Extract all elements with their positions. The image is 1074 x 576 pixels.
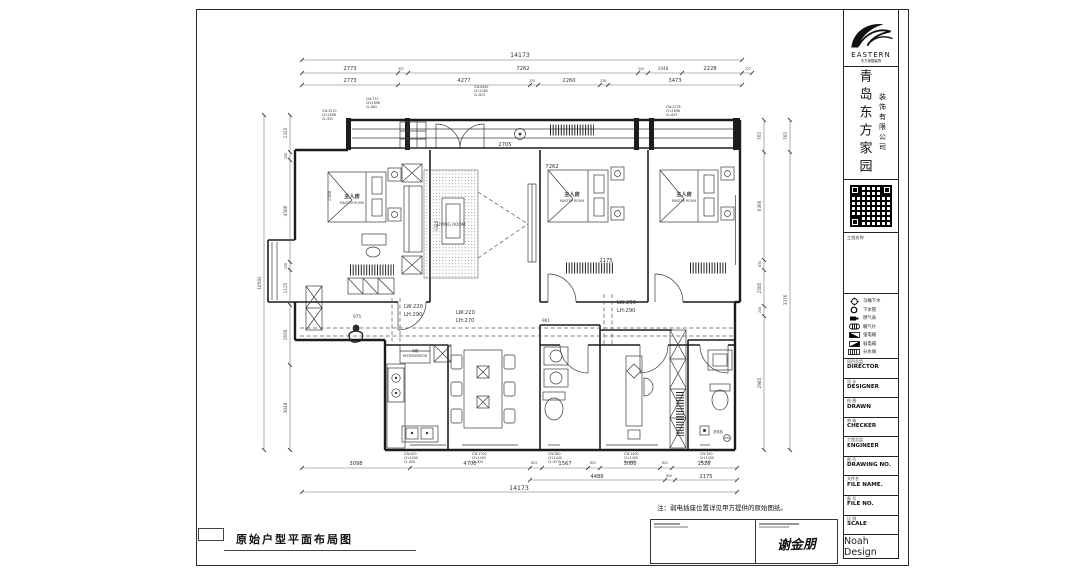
svg-text:1500: 1500 (327, 190, 332, 201)
field-file-name: 文件名 FILE NAME. (843, 475, 899, 496)
company-box: 青岛东方家园 装饰有限公司 (843, 66, 899, 180)
svg-text:225: 225 (529, 79, 535, 83)
svg-text:3048: 3048 (283, 402, 288, 413)
svg-text:2773: 2773 (343, 78, 356, 84)
study (626, 356, 653, 439)
field-engineer: 工程总监 ENGINEER (843, 436, 899, 457)
eastern-logo-icon (846, 18, 896, 52)
svg-text:CL-922: CL-922 (700, 460, 711, 464)
svg-text:327: 327 (398, 67, 404, 71)
svg-text:LH:290: LH:290 (404, 312, 422, 318)
drain-pipe-icon (848, 306, 860, 314)
logo-box: EASTERN 东方家园装饰 (843, 9, 899, 67)
svg-text:3098: 3098 (349, 461, 362, 467)
field-scale: 比 例 SCALE (843, 515, 899, 536)
power-box-icon (848, 332, 860, 338)
signature-text: 谢金朋 (756, 533, 838, 555)
hall-closet (306, 286, 322, 330)
svg-text:225: 225 (638, 67, 644, 71)
svg-text:CL-927: CL-927 (548, 460, 559, 464)
svg-text:10592: 10592 (257, 276, 262, 290)
svg-text:4488: 4488 (590, 474, 603, 480)
svg-text:2175: 2175 (599, 258, 612, 264)
svg-text:230: 230 (758, 307, 762, 313)
svg-text:6366: 6366 (757, 200, 762, 211)
title-block: EASTERN 东方家园装饰 青岛东方家园 装饰有限公司 工程名称 马桶下水 下 (843, 10, 899, 565)
logo-subtext: 东方家园装饰 (861, 59, 881, 64)
svg-text:CL-915: CL-915 (624, 460, 635, 464)
svg-text:2505: 2505 (757, 282, 762, 293)
svg-text:765: 765 (783, 132, 788, 140)
legend-box: 马桶下水 下水管 燃气表 暖气片 强电箱 弱电箱 (843, 293, 899, 359)
svg-text:7262: 7262 (545, 164, 558, 170)
walls (268, 118, 740, 450)
svg-text:LH:290: LH:290 (617, 308, 635, 314)
signature-cell-left (650, 519, 756, 564)
svg-text:2175: 2175 (699, 474, 712, 480)
svg-text:LW:220: LW:220 (456, 310, 475, 316)
bedroom3-label: 主人房 (676, 190, 692, 198)
bed-3 (660, 167, 734, 222)
svg-text:MASTER ROOM: MASTER ROOM (560, 199, 584, 203)
field-file-no: 备 号 FILE NO. (843, 495, 899, 516)
svg-text:LW:200: LW:200 (617, 300, 636, 306)
field-drawing-no: 图 号 DRAWING NO. (843, 456, 899, 477)
svg-text:MASTER ROOM: MASTER ROOM (672, 199, 696, 203)
living-room-label: LIVING ROOM (437, 222, 466, 227)
toilet-drain-icon (848, 297, 860, 306)
field-designer: 设 计 DESIGNER (843, 378, 899, 399)
svg-text:961: 961 (542, 318, 550, 323)
fridge-label: 冰箱 (412, 348, 419, 353)
bed-2 (548, 167, 624, 222)
svg-text:1325: 1325 (283, 127, 288, 138)
qr-code (850, 185, 892, 227)
dim-label: 14173 (510, 52, 530, 59)
svg-text:228: 228 (600, 79, 606, 83)
kitchen (387, 345, 451, 448)
wardrobe (348, 278, 394, 294)
floor-plan-drawing: 14173 2773 327 7262 225 1048 2228 227 27… (0, 0, 1074, 576)
furniture (328, 122, 734, 448)
living-room (402, 164, 536, 278)
svg-text:1567: 1567 (558, 461, 571, 467)
legend-item: 马桶下水 (848, 297, 896, 305)
gas-meter-icon (848, 315, 860, 322)
legend-item: 暖气片 (848, 323, 896, 331)
svg-text:LW:220: LW:220 (404, 304, 423, 310)
radiators (306, 130, 726, 448)
company-name-sub: 装饰有限公司 (878, 93, 888, 153)
plan-note: 注：弱电插座位置详见甲方提供的原始图纸。 (657, 502, 787, 512)
svg-text:1125: 1125 (283, 282, 288, 293)
svg-text:CL-623: CL-623 (666, 113, 677, 117)
manifold-icon (848, 349, 860, 355)
bed-1 (328, 168, 401, 257)
bathroom-2 (700, 350, 732, 441)
brand-text: Noah Design (844, 536, 898, 558)
title-block-fields: 项目总监 DIRECTOR 设 计 DESIGNER 绘 图 DRAWN 审 核… (843, 359, 899, 535)
plan-title-tab (198, 528, 224, 541)
legend-item: 弱电箱 (848, 340, 896, 348)
svg-text:CL-623: CL-623 (474, 93, 485, 97)
svg-text:2260: 2260 (562, 78, 575, 84)
svg-text:227: 227 (745, 67, 751, 71)
legend-item: 分水阀 (848, 348, 896, 356)
field-director: 项目总监 DIRECTOR (843, 358, 899, 379)
lowvolt-box-icon (848, 341, 860, 347)
bathroom-1 (543, 347, 568, 420)
svg-text:4506: 4506 (283, 205, 288, 216)
washer-label: 洗衣机 (713, 429, 723, 434)
svg-text:630: 630 (758, 261, 762, 267)
signature-cell-right: 谢金朋 (755, 519, 838, 564)
svg-text:230: 230 (284, 153, 288, 159)
svg-text:622: 622 (662, 461, 668, 465)
brand-box: Noah Design (843, 534, 899, 559)
svg-text:4277: 4277 (457, 78, 470, 84)
company-name: 青岛东方家园 (855, 69, 874, 177)
plan-title: 原始户型平面布局图 (236, 531, 353, 547)
svg-text:1650: 1650 (283, 329, 288, 340)
project-name-box: 工程名称 (843, 232, 899, 294)
svg-text:3376: 3376 (783, 294, 788, 305)
svg-text:CL-925: CL-925 (322, 117, 333, 121)
plan-title-underline (224, 550, 416, 551)
svg-text:14173: 14173 (509, 485, 529, 492)
legend-item: 下水管 (848, 306, 896, 314)
svg-text:CL-682: CL-682 (366, 105, 377, 109)
svg-text:2985: 2985 (757, 377, 762, 388)
svg-text:REFRIGERATOR: REFRIGERATOR (403, 354, 428, 358)
floor-plan-sheet: 14173 2773 327 7262 225 1048 2228 227 27… (0, 0, 1074, 576)
svg-text:3473: 3473 (668, 78, 681, 84)
beam-dashes (300, 192, 734, 346)
field-checker: 审 核 CHECKER (843, 417, 899, 438)
svg-text:600: 600 (666, 474, 672, 478)
svg-text:975: 975 (353, 314, 361, 319)
radiator-icon (848, 323, 860, 330)
svg-text:1048: 1048 (658, 66, 669, 71)
svg-text:765: 765 (757, 132, 762, 140)
legend-item: 燃气表 (848, 314, 896, 322)
legend-item: 强电箱 (848, 331, 896, 339)
qr-box (843, 179, 899, 233)
field-drawn: 绘 图 DRAWN (843, 397, 899, 418)
svg-text:CL-920: CL-920 (472, 460, 483, 464)
beam-labels: LW:220 LH:290 LW:220 LH:270 LW:200 LH:29… (404, 300, 636, 324)
svg-text:230: 230 (284, 263, 288, 269)
project-name-label: 工程名称 (847, 235, 895, 241)
svg-text:LH:270: LH:270 (456, 318, 474, 324)
svg-text:625: 625 (590, 461, 596, 465)
svg-text:7262: 7262 (516, 66, 529, 72)
svg-text:2228: 2228 (703, 66, 716, 72)
bedroom2-label: 主人房 (564, 190, 580, 198)
svg-text:623: 623 (531, 461, 537, 465)
svg-text:CL-900: CL-900 (404, 460, 415, 464)
svg-text:2773: 2773 (343, 66, 356, 72)
svg-text:MASTER ROOM: MASTER ROOM (340, 201, 364, 205)
dining (451, 350, 515, 428)
bedroom1-label: 主人房 (344, 192, 360, 200)
svg-text:2705: 2705 (498, 142, 511, 148)
